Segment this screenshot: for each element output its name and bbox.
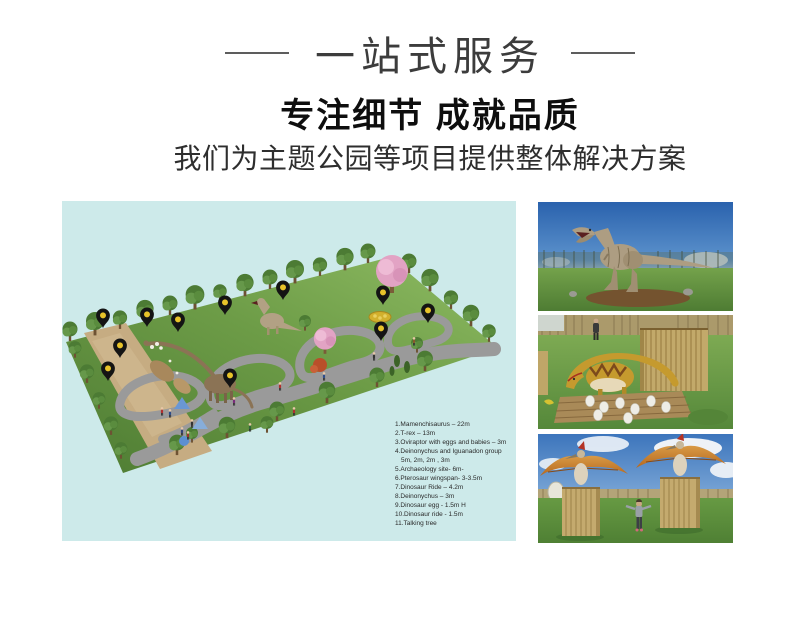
page-heading: 专注细节 成就品质 (60, 88, 800, 137)
page-subheading: 我们为主题公园等项目提供整体解决方案 (60, 137, 800, 177)
legend-item: 7.Dinosaur Ride – 4.2m (395, 483, 515, 492)
legend-item: 3.Oviraptor with eggs and babies – 3m (395, 438, 515, 447)
photo-column (538, 202, 733, 543)
page-title: 一站式服务 (315, 24, 545, 82)
wood-tower-right (660, 478, 700, 528)
section-title-row: 一站式服务 (60, 30, 800, 76)
legend-item: 8.Deinonychus – 3m (395, 492, 515, 501)
legend-item: 10.Dinosaur ride - 1.5m (395, 510, 515, 519)
legend-item: 1.Mamenchisaurus – 22m (395, 420, 515, 429)
wood-tower-left (562, 488, 600, 536)
legend-item: 9.Dinosaur egg - 1.5m H (395, 501, 515, 510)
legend-item: 6.Pterosaur wingspan- 3-3.5m (395, 474, 515, 483)
legend-item: 11.Talking tree (395, 519, 515, 528)
photo-pterosaur-models (538, 434, 733, 543)
park-map-illustration: 1.Mamenchisaurus – 22m 2.T-rex – 13m 3.O… (62, 201, 516, 541)
title-divider-left (225, 52, 289, 54)
photo-trex-model (538, 202, 733, 311)
legend-item: 2.T-rex – 13m (395, 429, 515, 438)
title-divider-right (571, 52, 635, 54)
legend-item: 4.Deinonychus and Iguanadon group (395, 447, 515, 456)
park-legend: 1.Mamenchisaurus – 22m 2.T-rex – 13m 3.O… (395, 420, 515, 528)
nest-figure (369, 312, 391, 323)
legend-item: 5.Archaeology site- 6m- (395, 465, 515, 474)
legend-item: 5m, 2m, 2m , 3m (395, 456, 515, 465)
photo-raptor-with-eggs (538, 315, 733, 429)
